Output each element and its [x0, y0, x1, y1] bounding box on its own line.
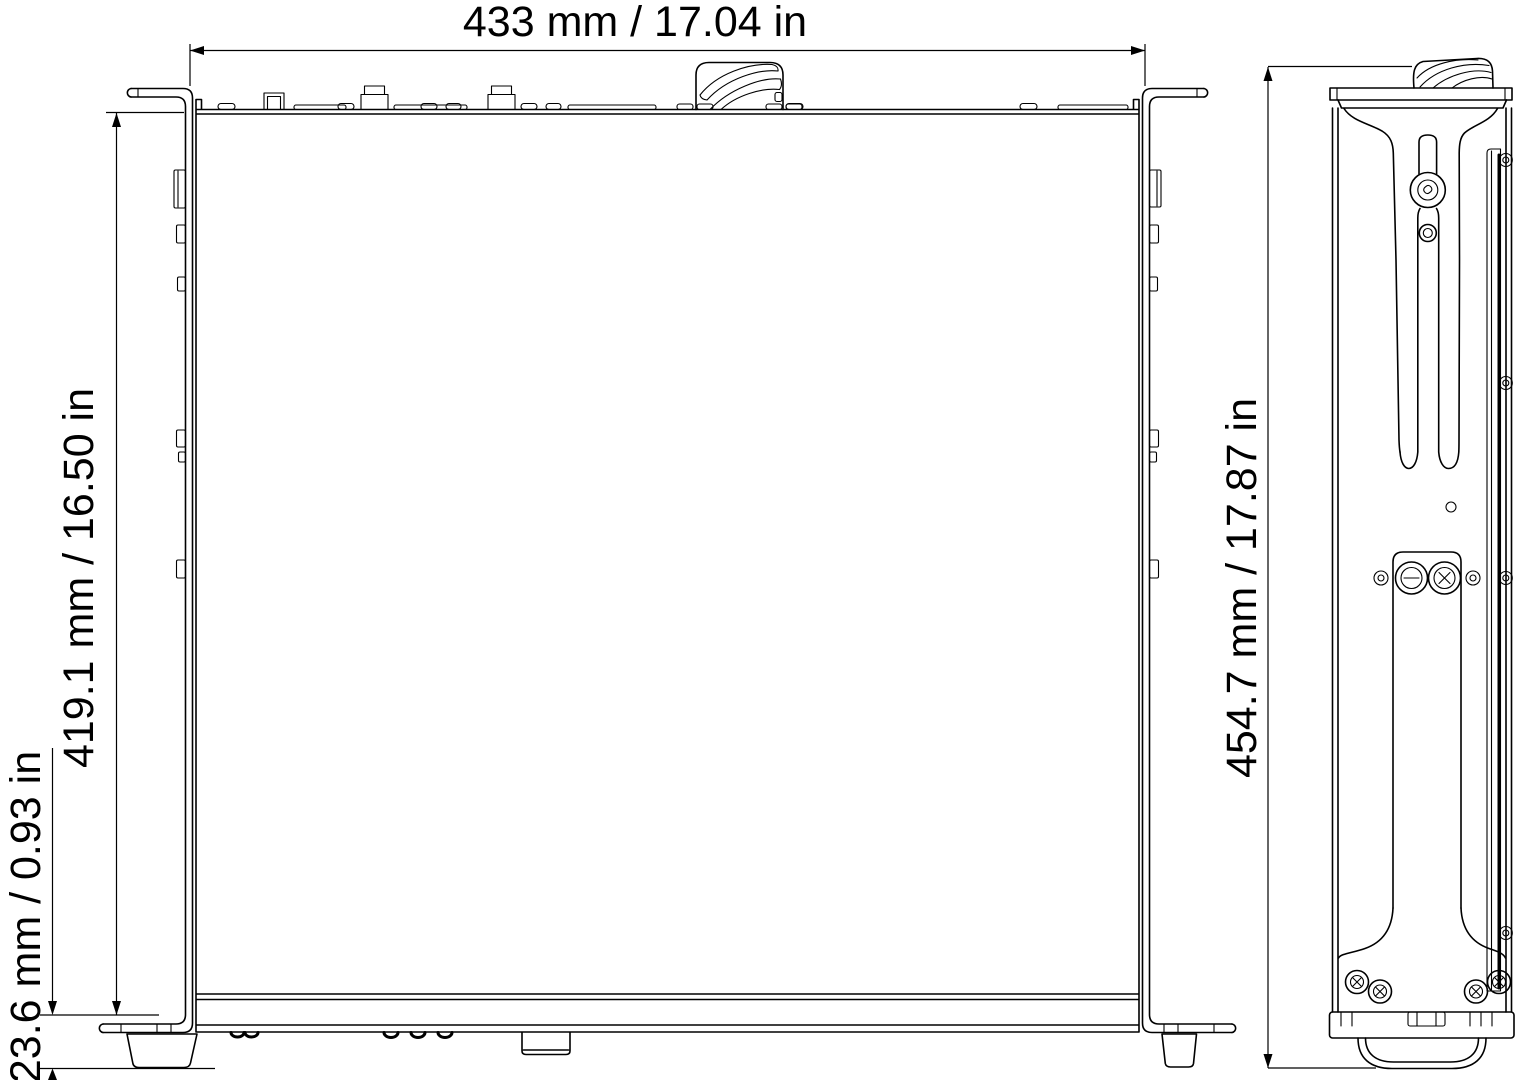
bottom-vents: [231, 1033, 452, 1038]
side-view: [1330, 58, 1515, 1068]
pivot-screw: [1410, 173, 1445, 208]
top-edge-components: [218, 86, 1128, 110]
base-screws: [1346, 971, 1511, 1004]
drawing-canvas: 433 mm / 17.04 in 419.1 mm / 16.50 in 23…: [0, 0, 1527, 1080]
bracket-arm: [1344, 109, 1498, 513]
chassis-outline: [196, 100, 1139, 1033]
left-foot: [127, 1034, 197, 1068]
dimension-height: 419.1 mm / 16.50 in: [40, 113, 184, 1016]
dimension-height-label: 419.1 mm / 16.50 in: [55, 388, 103, 768]
front-view: [99, 63, 1235, 1068]
small-screw: [1466, 571, 1480, 585]
dimension-depth: 454.7 mm / 17.87 in: [1218, 67, 1412, 1069]
right-foot: [1162, 1034, 1197, 1067]
side-bottom-plate: [1330, 1012, 1515, 1038]
dimensions: 433 mm / 17.04 in 419.1 mm / 16.50 in 23…: [2, 0, 1412, 1080]
small-screw: [1374, 571, 1388, 585]
carry-handle: [1358, 1038, 1486, 1069]
dimension-width-label: 433 mm / 17.04 in: [463, 0, 807, 46]
dimension-depth-label: 454.7 mm / 17.87 in: [1218, 398, 1266, 778]
dimension-drawing: 433 mm / 17.04 in 419.1 mm / 16.50 in 23…: [0, 0, 1527, 1080]
adjustment-slot: [1419, 135, 1437, 174]
side-knob: [1413, 58, 1493, 88]
knob-grip-swirl: [700, 64, 781, 109]
ear-tabs-left: [174, 170, 186, 578]
top-knob: [677, 63, 802, 110]
dimension-width: 433 mm / 17.04 in: [190, 0, 1145, 86]
ear-tabs-right: [1150, 170, 1162, 578]
lock-screw: [1419, 225, 1436, 242]
knob-knurl: [1417, 60, 1492, 88]
dimension-foot-height-label: 23.6 mm / 0.93 in: [2, 751, 50, 1080]
bottom-plate-details: [231, 1033, 570, 1055]
pin-hole: [1446, 502, 1456, 512]
left-rack-ear: [99, 89, 192, 1033]
side-top-plate: [1330, 88, 1512, 108]
side-body-edges: [1333, 108, 1512, 1012]
side-rail: [1487, 149, 1512, 991]
dimension-foot-height: 23.6 mm / 0.93 in: [2, 748, 215, 1080]
mount-plate: [1339, 552, 1506, 958]
bottom-tab: [522, 1033, 570, 1055]
